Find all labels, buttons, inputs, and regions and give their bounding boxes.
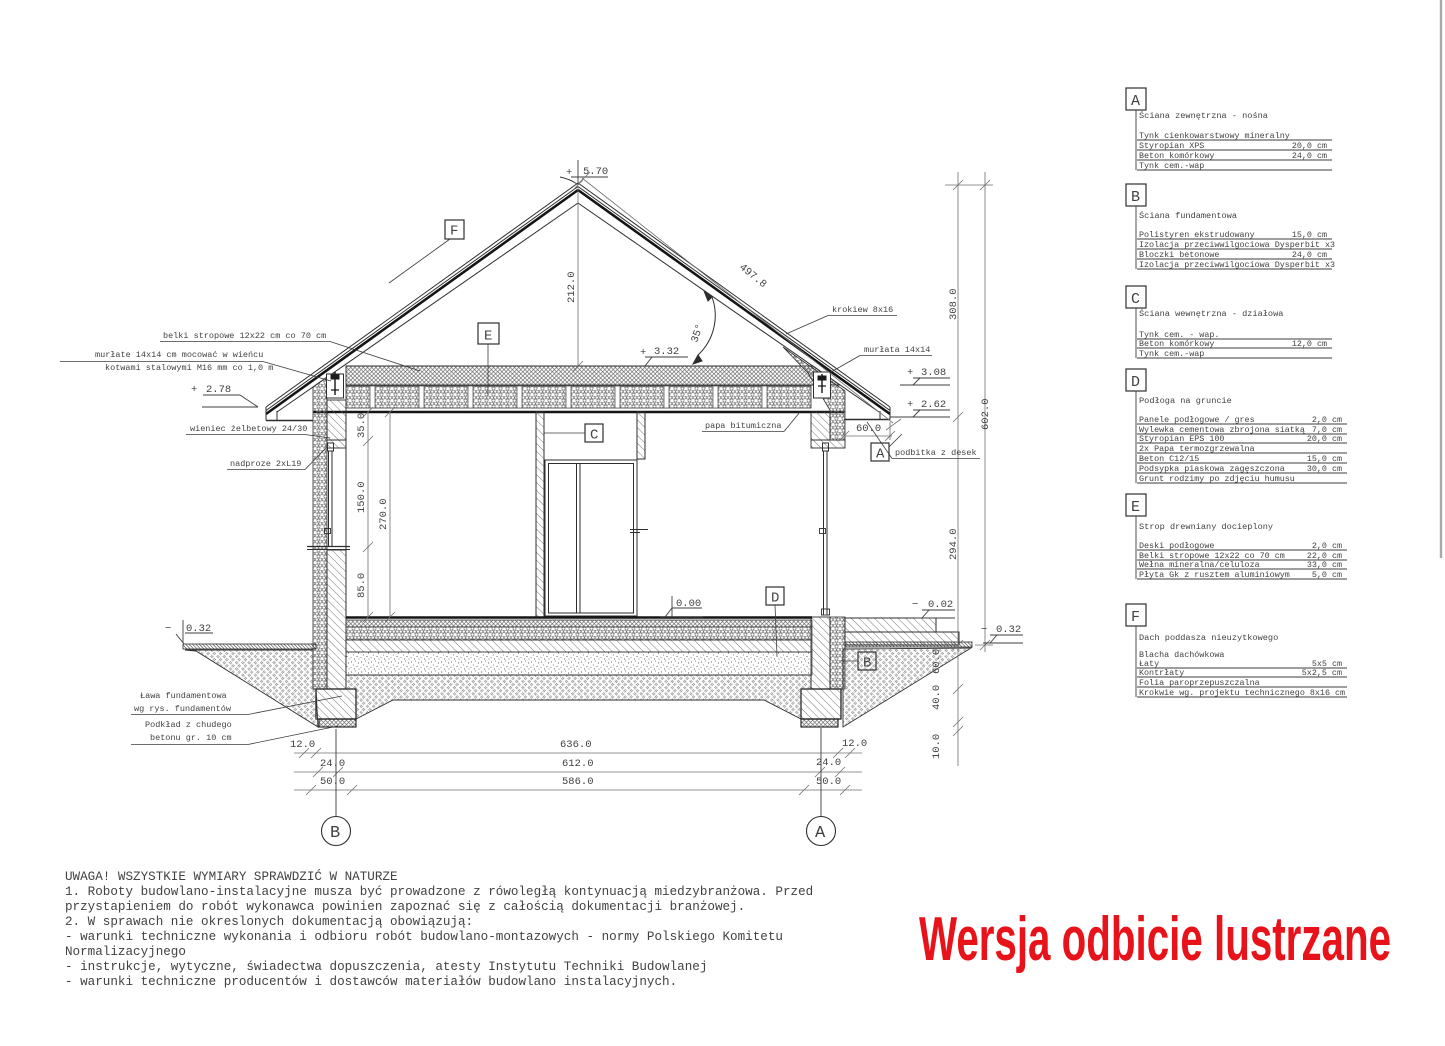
svg-text:Grunt rodzimy po zdjęciu humus: Grunt rodzimy po zdjęciu humusu — [1139, 474, 1295, 484]
svg-text:Wersja odbicie lustrzane: Wersja odbicie lustrzane — [919, 905, 1391, 974]
svg-text:612.0: 612.0 — [562, 758, 594, 770]
svg-text:Tynk cem.-wap: Tynk cem.-wap — [1139, 349, 1204, 359]
svg-text:murłate 14x14 cm mocować w wie: murłate 14x14 cm mocować w wieńcu — [95, 350, 263, 360]
svg-text:Polistyren ekstrudowany: Polistyren ekstrudowany — [1139, 230, 1255, 240]
svg-text:+: + — [191, 384, 197, 396]
svg-text:Ściana wewnętrzna - działowa: Ściana wewnętrzna - działowa — [1139, 308, 1283, 319]
svg-text:C: C — [590, 428, 598, 444]
svg-text:E: E — [1131, 499, 1140, 516]
svg-text:E: E — [484, 329, 492, 345]
svg-text:0.32: 0.32 — [996, 624, 1021, 636]
svg-text:308.0: 308.0 — [948, 288, 960, 320]
svg-text:5.70: 5.70 — [583, 166, 608, 178]
svg-text:0.32: 0.32 — [186, 623, 211, 635]
svg-text:20,0 cm: 20,0 cm — [1307, 434, 1342, 444]
svg-text:2. W sprawach nie okreslonych: 2. W sprawach nie okreslonych dokumentac… — [65, 915, 473, 929]
svg-text:Podkład z chudego: Podkład z chudego — [145, 720, 232, 730]
svg-text:Izolacja przeciwwilgociowa Dys: Izolacja przeciwwilgociowa Dysperbit x3 — [1139, 240, 1335, 250]
svg-text:24,0 cm: 24,0 cm — [1292, 250, 1327, 260]
svg-text:A: A — [876, 447, 885, 463]
svg-text:Beton C12/15: Beton C12/15 — [1139, 454, 1199, 464]
svg-text:60.0: 60.0 — [931, 649, 943, 674]
svg-text:10.0: 10.0 — [931, 734, 943, 759]
svg-text:+: + — [907, 399, 913, 411]
svg-text:Podsypka piaskowa zagęszczona: Podsypka piaskowa zagęszczona — [1139, 464, 1285, 474]
svg-text:Dach poddasza nieuzytkowego: Dach poddasza nieuzytkowego — [1139, 633, 1278, 643]
svg-text:Ława fundamentowa: Ława fundamentowa — [140, 691, 227, 701]
svg-text:Bloczki betonowe: Bloczki betonowe — [1139, 250, 1219, 260]
svg-text:24.0: 24.0 — [816, 757, 841, 769]
svg-text:2,0 cm: 2,0 cm — [1312, 415, 1342, 425]
svg-text:Folia paroprzepuszczalna: Folia paroprzepuszczalna — [1139, 678, 1260, 688]
svg-text:2,0 cm: 2,0 cm — [1312, 541, 1342, 551]
svg-text:Podłoga na gruncie: Podłoga na gruncie — [1139, 396, 1232, 406]
svg-text:Tynk cienkowarstwowy mineralny: Tynk cienkowarstwowy mineralny — [1139, 131, 1290, 141]
svg-text:A: A — [815, 824, 826, 843]
svg-text:Wełna mineralna/celuloza: Wełna mineralna/celuloza — [1139, 560, 1260, 570]
svg-text:15,0 cm: 15,0 cm — [1292, 230, 1327, 240]
svg-text:294.0: 294.0 — [948, 528, 960, 560]
svg-text:497.8: 497.8 — [736, 262, 768, 291]
svg-text:Panele podłogowe / gres: Panele podłogowe / gres — [1139, 415, 1255, 425]
svg-text:Normalizacyjnego: Normalizacyjnego — [65, 945, 186, 959]
svg-text:D: D — [1131, 374, 1140, 391]
svg-text:−: − — [912, 599, 918, 611]
svg-text:−: − — [981, 624, 987, 636]
svg-text:40.0: 40.0 — [931, 685, 943, 710]
svg-text:3.08: 3.08 — [921, 367, 946, 379]
svg-text:betonu gr. 10 cm: betonu gr. 10 cm — [150, 733, 232, 743]
svg-text:podbitka z desek: podbitka z desek — [895, 448, 977, 458]
svg-text:- instrukcje, wytyczne, świade: - instrukcje, wytyczne, świadectwa dopus… — [65, 960, 707, 974]
svg-text:270.0: 270.0 — [378, 498, 390, 530]
svg-text:24,0 cm: 24,0 cm — [1292, 151, 1327, 161]
svg-text:Izolacja przeciwwilgociowa Dys: Izolacja przeciwwilgociowa Dysperbit x3 — [1139, 260, 1335, 270]
svg-text:33,0 cm: 33,0 cm — [1307, 560, 1342, 570]
svg-text:12.0: 12.0 — [842, 738, 867, 750]
svg-text:krokiew 8x16: krokiew 8x16 — [832, 305, 893, 315]
svg-text:B: B — [330, 824, 340, 843]
svg-text:12,0 cm: 12,0 cm — [1292, 339, 1327, 349]
svg-text:35°: 35° — [689, 323, 706, 345]
svg-text:+: + — [640, 347, 646, 359]
svg-text:+: + — [566, 167, 572, 179]
svg-text:20,0 cm: 20,0 cm — [1292, 141, 1327, 151]
svg-text:0.00: 0.00 — [676, 598, 701, 610]
svg-text:B: B — [1131, 189, 1140, 206]
svg-text:kotwami stalowymi M16 mm co 1,: kotwami stalowymi M16 mm co 1,0 m — [105, 363, 273, 373]
svg-text:30,0 cm: 30,0 cm — [1307, 464, 1342, 474]
svg-text:Ściana fundamentowa: Ściana fundamentowa — [1139, 210, 1237, 221]
svg-text:586.0: 586.0 — [562, 776, 594, 788]
svg-text:15,0 cm: 15,0 cm — [1307, 454, 1342, 464]
svg-text:Kontrłaty: Kontrłaty — [1139, 668, 1184, 678]
svg-text:- warunki techniczne wykonania: - warunki techniczne wykonania i odbioru… — [65, 930, 783, 944]
svg-text:5,0 cm: 5,0 cm — [1312, 570, 1342, 580]
svg-text:murłata 14x14: murłata 14x14 — [864, 345, 930, 355]
svg-text:602.0: 602.0 — [980, 398, 992, 430]
svg-text:wg rys. fundamentów: wg rys. fundamentów — [134, 704, 232, 714]
svg-text:belki stropowe 12x22 cm co 70: belki stropowe 12x22 cm co 70 cm — [163, 331, 326, 341]
svg-text:Styropian EPS 100: Styropian EPS 100 — [1139, 434, 1224, 444]
svg-text:- warunki techniczne producent: - warunki techniczne producentów i dosta… — [65, 975, 677, 989]
svg-text:0.02: 0.02 — [928, 599, 953, 611]
svg-text:Krokwie wg. projektu techniczn: Krokwie wg. projektu technicznego 8x16 c… — [1139, 688, 1345, 698]
svg-text:B: B — [863, 656, 871, 672]
svg-text:24.0: 24.0 — [320, 758, 345, 770]
svg-text:50.0: 50.0 — [816, 776, 841, 788]
svg-text:3.32: 3.32 — [654, 346, 679, 358]
svg-text:Deski podłogowe: Deski podłogowe — [1139, 541, 1214, 551]
svg-text:50.0: 50.0 — [320, 776, 345, 788]
svg-text:150.0: 150.0 — [356, 481, 368, 513]
svg-text:35.0: 35.0 — [356, 413, 368, 438]
svg-text:nadproze 2xL19: nadproze 2xL19 — [230, 459, 301, 469]
svg-text:papa bitumiczna: papa bitumiczna — [705, 421, 782, 431]
svg-text:636.0: 636.0 — [560, 739, 592, 751]
svg-text:Tynk cem.-wap: Tynk cem.-wap — [1139, 161, 1204, 171]
svg-text:2.62: 2.62 — [921, 399, 946, 411]
svg-text:Ściana zewnętrzna - nośna: Ściana zewnętrzna - nośna — [1139, 110, 1268, 121]
svg-text:212.0: 212.0 — [566, 271, 578, 303]
svg-text:F: F — [450, 224, 458, 240]
svg-text:wieniec żelbetowy 24/30: wieniec żelbetowy 24/30 — [190, 424, 307, 434]
svg-text:Strop drewniany docieplony: Strop drewniany docieplony — [1139, 522, 1273, 532]
svg-text:85.0: 85.0 — [356, 573, 368, 598]
svg-text:2.78: 2.78 — [206, 384, 231, 396]
svg-text:+: + — [907, 367, 913, 379]
svg-text:12.0: 12.0 — [290, 739, 315, 751]
svg-text:przystapieniem do robót wykona: przystapieniem do robót wykonawca powini… — [65, 900, 745, 914]
svg-text:Płyta Gk z rusztem aluminiowym: Płyta Gk z rusztem aluminiowym — [1139, 570, 1290, 580]
svg-text:C: C — [1131, 291, 1140, 308]
svg-text:−: − — [165, 623, 171, 635]
svg-text:5x2,5 cm: 5x2,5 cm — [1302, 668, 1342, 678]
svg-text:Styropian XPS: Styropian XPS — [1139, 141, 1204, 151]
svg-text:Beton komórkowy: Beton komórkowy — [1139, 339, 1214, 349]
svg-text:Beton komórkowy: Beton komórkowy — [1139, 151, 1214, 161]
svg-text:UWAGA! WSZYSTKIE WYMIARY SPRAW: UWAGA! WSZYSTKIE WYMIARY SPRAWDZIĆ W NAT… — [65, 869, 398, 884]
svg-text:1. Roboty budowlano-instalacyj: 1. Roboty budowlano-instalacyjne musza b… — [65, 885, 813, 899]
svg-text:F: F — [1131, 609, 1140, 626]
svg-text:D: D — [771, 591, 779, 607]
svg-text:A: A — [1131, 93, 1140, 110]
svg-text:2x Papa termozgrzewalna: 2x Papa termozgrzewalna — [1139, 444, 1255, 454]
